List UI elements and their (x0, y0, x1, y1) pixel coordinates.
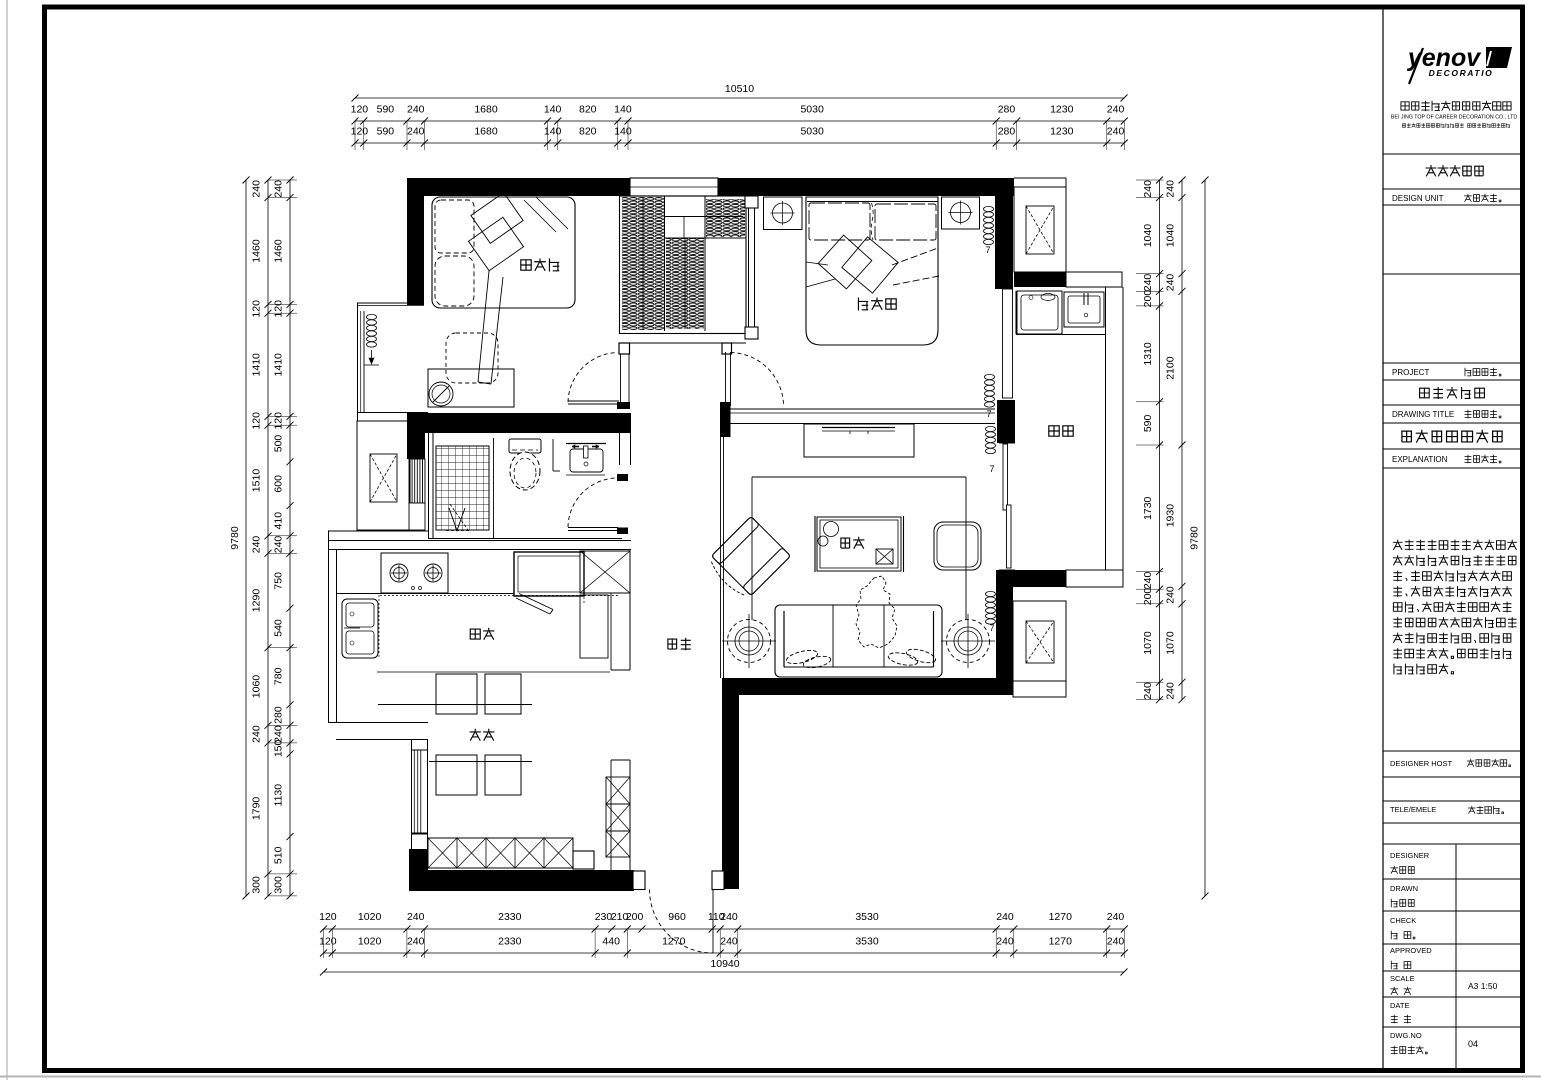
svg-text:10510: 10510 (725, 83, 754, 95)
svg-text:140: 140 (544, 104, 562, 116)
svg-text:240: 240 (1142, 682, 1154, 700)
svg-text:7: 7 (989, 464, 994, 474)
svg-text:2330: 2330 (498, 911, 522, 923)
svg-text:3530: 3530 (855, 936, 879, 948)
svg-text:240: 240 (1165, 586, 1177, 604)
svg-text:7: 7 (986, 409, 991, 419)
svg-text:120: 120 (319, 936, 337, 948)
svg-text:240: 240 (407, 936, 425, 948)
svg-text:140: 140 (614, 126, 632, 138)
svg-text:140: 140 (544, 126, 562, 138)
svg-text:240: 240 (273, 180, 285, 198)
svg-text:1270: 1270 (662, 936, 686, 948)
svg-text:9780: 9780 (1189, 526, 1201, 550)
svg-text:200: 200 (626, 911, 644, 923)
svg-text:1510: 1510 (251, 469, 263, 493)
svg-text:7: 7 (989, 623, 994, 633)
svg-text:140: 140 (614, 104, 632, 116)
svg-text:7: 7 (985, 245, 990, 255)
svg-text:240: 240 (251, 180, 263, 198)
svg-text:300: 300 (251, 876, 263, 894)
svg-text:240: 240 (1165, 180, 1177, 198)
svg-text:500: 500 (273, 435, 285, 453)
svg-text:240: 240 (273, 536, 285, 554)
svg-text:240: 240 (996, 936, 1014, 948)
svg-text:510: 510 (273, 846, 285, 864)
svg-text:1230: 1230 (1050, 104, 1074, 116)
svg-text:1460: 1460 (251, 239, 263, 263)
svg-text:200: 200 (1142, 588, 1154, 606)
svg-text:120: 120 (251, 412, 263, 430)
svg-text:1730: 1730 (1142, 496, 1154, 520)
svg-text:CHECK: CHECK (1390, 916, 1416, 925)
svg-text:240: 240 (1107, 104, 1125, 116)
svg-text:120: 120 (319, 911, 337, 923)
svg-text:240: 240 (1142, 571, 1154, 589)
svg-text:240: 240 (407, 126, 425, 138)
svg-text:120: 120 (351, 104, 369, 116)
svg-text:410: 410 (273, 512, 285, 530)
svg-text:240: 240 (720, 911, 738, 923)
svg-text:1130: 1130 (273, 784, 285, 807)
svg-text:DRAWING TITLE: DRAWING TITLE (1392, 410, 1454, 419)
svg-text:DECORATIO: DECORATIO (1429, 68, 1494, 78)
svg-text:1680: 1680 (474, 104, 498, 116)
svg-text:230: 230 (595, 911, 613, 923)
svg-text:DWG.NO: DWG.NO (1390, 1031, 1422, 1040)
svg-text:120: 120 (351, 126, 369, 138)
svg-text:240: 240 (407, 911, 425, 923)
svg-text:280: 280 (998, 126, 1016, 138)
svg-text:120: 120 (273, 300, 285, 318)
svg-text:240: 240 (1107, 936, 1125, 948)
svg-text:240: 240 (1165, 274, 1177, 292)
svg-text:960: 960 (668, 911, 686, 923)
svg-text:1230: 1230 (1050, 126, 1074, 138)
svg-text:540: 540 (273, 619, 285, 637)
svg-text:240: 240 (1107, 126, 1125, 138)
svg-text:1460: 1460 (273, 239, 285, 263)
svg-text:240: 240 (1107, 911, 1125, 923)
svg-text:590: 590 (1142, 414, 1154, 432)
svg-text:280: 280 (273, 706, 285, 724)
svg-text:780: 780 (273, 667, 285, 685)
svg-text:1290: 1290 (251, 589, 263, 613)
svg-text:820: 820 (579, 126, 597, 138)
svg-text:1070: 1070 (1165, 631, 1177, 655)
svg-text:5030: 5030 (800, 126, 824, 138)
svg-text:600: 600 (273, 475, 285, 493)
svg-text:750: 750 (273, 572, 285, 590)
svg-text:240: 240 (407, 104, 425, 116)
svg-text:240: 240 (1142, 180, 1154, 198)
svg-text:04: 04 (1468, 1039, 1478, 1049)
svg-text:200: 200 (1142, 290, 1154, 308)
svg-text:3530: 3530 (855, 911, 879, 923)
svg-text:DESIGNER: DESIGNER (1390, 851, 1430, 860)
svg-text:1270: 1270 (1049, 911, 1073, 923)
svg-text:BEI JING TOP OF CAREER DECORAT: BEI JING TOP OF CAREER DECORATION CO., L… (1391, 115, 1518, 121)
svg-text:590: 590 (377, 104, 395, 116)
svg-text:300: 300 (273, 876, 285, 894)
svg-text:1790: 1790 (251, 797, 263, 821)
svg-text:PROJECT: PROJECT (1392, 368, 1429, 377)
svg-text:240: 240 (720, 936, 738, 948)
svg-text:2330: 2330 (498, 936, 522, 948)
svg-text:820: 820 (579, 104, 597, 116)
svg-text:SCALE: SCALE (1390, 974, 1415, 983)
svg-text:DRAWN: DRAWN (1390, 884, 1418, 893)
svg-text:5030: 5030 (800, 104, 824, 116)
svg-text:DESIGNER HOST: DESIGNER HOST (1390, 759, 1453, 768)
svg-text:10940: 10940 (710, 958, 739, 970)
svg-text:1040: 1040 (1165, 224, 1177, 248)
svg-text:240: 240 (1142, 274, 1154, 292)
svg-text:DATE: DATE (1390, 1001, 1409, 1010)
svg-text:1680: 1680 (474, 126, 498, 138)
svg-text:A3 1:50: A3 1:50 (1468, 981, 1498, 991)
svg-text:1270: 1270 (1049, 936, 1073, 948)
svg-text:1060: 1060 (251, 675, 263, 699)
svg-text:1020: 1020 (358, 936, 382, 948)
svg-text:EXPLANATION: EXPLANATION (1392, 455, 1448, 464)
svg-text:1930: 1930 (1165, 504, 1177, 528)
svg-text:240: 240 (251, 536, 263, 554)
svg-text:150: 150 (273, 739, 285, 757)
svg-text:9780: 9780 (229, 526, 241, 550)
svg-text:440: 440 (602, 936, 620, 948)
svg-text:1410: 1410 (251, 353, 263, 377)
svg-text:TELE/EMELE: TELE/EMELE (1390, 805, 1436, 814)
svg-text:120: 120 (273, 412, 285, 430)
svg-text:240: 240 (1165, 682, 1177, 700)
svg-text:2100: 2100 (1165, 356, 1177, 380)
svg-text:1310: 1310 (1142, 342, 1154, 366)
svg-text:120: 120 (251, 300, 263, 318)
svg-text:1410: 1410 (273, 353, 285, 377)
svg-text:1040: 1040 (1142, 224, 1154, 248)
svg-text:590: 590 (377, 126, 395, 138)
svg-text:1020: 1020 (358, 911, 382, 923)
svg-text:APPROVED: APPROVED (1390, 946, 1432, 955)
svg-text:DESIGN UNIT: DESIGN UNIT (1392, 194, 1444, 203)
svg-text:240: 240 (996, 911, 1014, 923)
svg-text:1070: 1070 (1142, 631, 1154, 655)
svg-text:240: 240 (251, 725, 263, 743)
svg-text:280: 280 (998, 104, 1016, 116)
